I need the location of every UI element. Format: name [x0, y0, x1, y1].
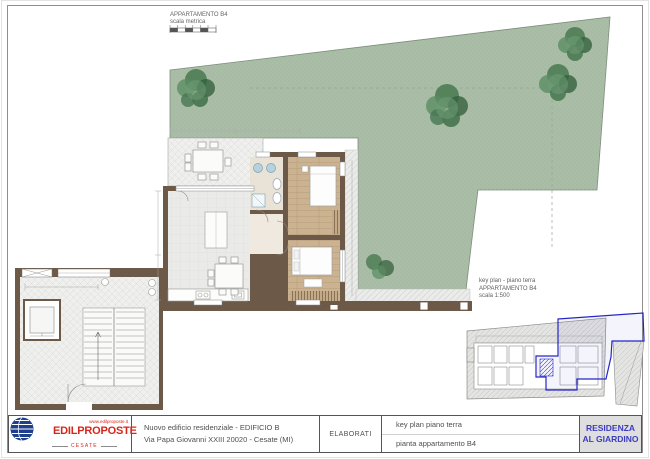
key-plan-label-line2: APPARTAMENTO B4 [479, 286, 537, 294]
sofa [205, 212, 227, 248]
dash-right [101, 446, 117, 447]
floor-plan-canvas [0, 0, 650, 459]
elaborati-row-2: pianta appartamento B4 [382, 435, 579, 453]
hallway-floor [250, 214, 283, 254]
drawing-sheet: APPARTAMENTO B4 scala metrica key plan -… [0, 0, 650, 459]
project-address: Via Papa Giovanni XXIII 20020 - Cesate (… [144, 434, 319, 446]
stairs [83, 308, 145, 386]
scale-legend: APPARTAMENTO B4 scala metrica [170, 12, 228, 26]
key-plan-label-line3: scala 1:500 [479, 293, 537, 301]
logo-name: EDILPROPOSTE [53, 425, 137, 437]
key-plan-label-line1: key plan - piano terra [479, 278, 537, 286]
dash-left [52, 446, 68, 447]
project-title: Nuovo edificio residenziale - EDIFICIO B [144, 422, 319, 434]
scale-legend-title: APPARTAMENTO B4 [170, 12, 228, 19]
project-cell: Nuovo edificio residenziale - EDIFICIO B… [131, 416, 319, 452]
residence-line1: RESIDENZA [586, 423, 635, 434]
logo-website: www.edilproposte.it [89, 419, 128, 424]
key-plan-drawing [467, 313, 644, 406]
residence-line2: AL GIARDINO [582, 434, 638, 445]
residence-cell: RESIDENZA AL GIARDINO [579, 416, 641, 452]
logo-cell: EDILPROPOSTE www.edilproposte.it CESATE [9, 416, 131, 452]
scale-legend-subtitle: scala metrica [170, 19, 228, 26]
elaborati-row-1: key plan piano terra [382, 416, 579, 435]
title-block: EDILPROPOSTE www.edilproposte.it CESATE … [8, 415, 642, 453]
wardrobe [290, 291, 338, 301]
wardrobe [332, 210, 340, 234]
key-plan-label: key plan - piano terra APPARTAMENTO B4 s… [479, 278, 537, 301]
elevator [24, 300, 60, 340]
terrace [168, 138, 263, 186]
globe-icon [9, 416, 35, 442]
elaborati-list-cell: key plan piano terra pianta appartamento… [381, 416, 579, 452]
metric-scale-bar [170, 25, 216, 33]
elaborati-label-cell: ELABORATI [319, 416, 381, 452]
elaborati-label: ELABORATI [329, 431, 371, 438]
stairwell [15, 268, 163, 410]
logo-city: CESATE [49, 443, 120, 449]
